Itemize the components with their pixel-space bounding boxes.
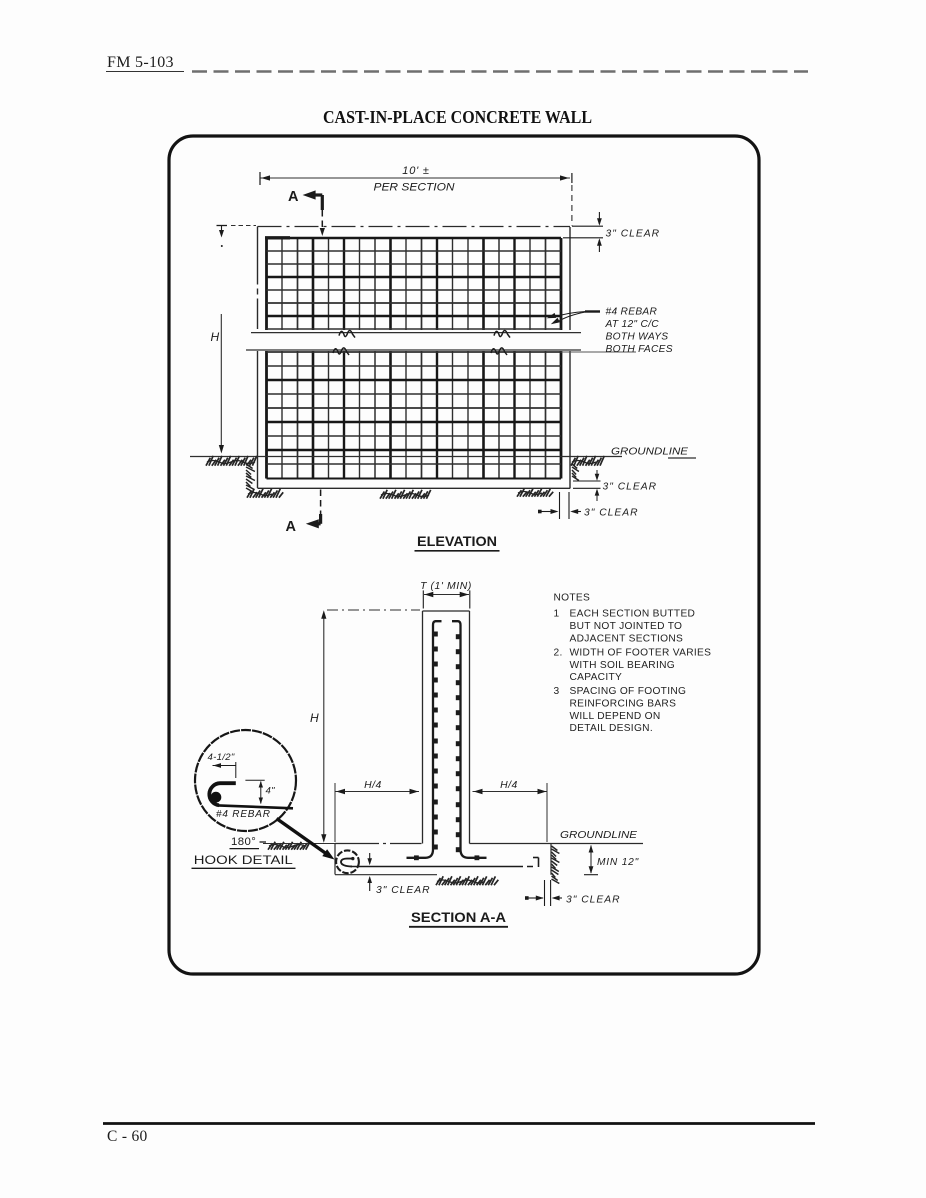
svg-text:3" CLEAR: 3" CLEAR — [603, 482, 658, 493]
svg-text:#4 REBAR: #4 REBAR — [216, 809, 271, 820]
svg-text:SECTION A-A: SECTION A-A — [411, 910, 506, 925]
svg-text:4-1/2": 4-1/2" — [208, 752, 235, 763]
svg-text:DETAIL DESIGN.: DETAIL DESIGN. — [570, 723, 653, 734]
svg-text:H/4: H/4 — [500, 780, 518, 791]
svg-text:3: 3 — [554, 686, 560, 697]
svg-text:3" CLEAR: 3" CLEAR — [606, 229, 661, 240]
svg-text:CAST-IN-PLACE CONCRETE WALL: CAST-IN-PLACE CONCRETE WALL — [323, 107, 592, 127]
svg-text:MIN 12": MIN 12" — [597, 857, 639, 868]
svg-text:AT 12" C/C: AT 12" C/C — [605, 319, 660, 330]
svg-text:NOTES: NOTES — [554, 593, 591, 604]
svg-text:10' ±: 10' ± — [402, 165, 429, 177]
svg-text:HOOK DETAIL: HOOK DETAIL — [194, 854, 294, 867]
svg-text:ELEVATION: ELEVATION — [417, 534, 497, 549]
svg-text:WILL DEPEND ON: WILL DEPEND ON — [570, 711, 661, 722]
svg-text:SPACING OF FOOTING: SPACING OF FOOTING — [570, 686, 687, 697]
svg-text:WIDTH OF FOOTER VARIES: WIDTH OF FOOTER VARIES — [570, 648, 712, 659]
svg-text:GROUNDLINE: GROUNDLINE — [611, 447, 688, 458]
svg-text:2.: 2. — [554, 648, 563, 659]
svg-text:T (1' MIN): T (1' MIN) — [420, 581, 472, 592]
svg-text:3" CLEAR: 3" CLEAR — [566, 895, 621, 906]
svg-text:BOTH FACES: BOTH FACES — [606, 344, 673, 355]
svg-text:GROUNDLINE: GROUNDLINE — [560, 830, 637, 841]
svg-text:PER SECTION: PER SECTION — [374, 182, 455, 194]
svg-text:#4 REBAR: #4 REBAR — [606, 307, 658, 318]
svg-text:EACH SECTION BUTTED: EACH SECTION BUTTED — [570, 609, 696, 620]
svg-text:FM 5-103: FM 5-103 — [107, 54, 174, 71]
svg-text:A: A — [288, 189, 299, 205]
svg-text:BUT NOT JOINTED TO: BUT NOT JOINTED TO — [570, 621, 683, 632]
svg-text:4": 4" — [266, 786, 276, 797]
svg-text:BOTH WAYS: BOTH WAYS — [606, 332, 669, 343]
svg-text:3" CLEAR: 3" CLEAR — [376, 885, 431, 896]
svg-text:REINFORCING BARS: REINFORCING BARS — [570, 699, 677, 710]
svg-text:H: H — [310, 711, 319, 725]
svg-text:180°: 180° — [231, 836, 256, 848]
svg-text:A: A — [286, 519, 297, 535]
svg-text:C - 60: C - 60 — [107, 1128, 148, 1145]
svg-text:1: 1 — [554, 609, 560, 620]
svg-text:ADJACENT SECTIONS: ADJACENT SECTIONS — [570, 634, 684, 645]
svg-text:3" CLEAR: 3" CLEAR — [584, 508, 639, 519]
svg-text:H: H — [211, 330, 220, 344]
svg-text:WITH SOIL BEARING: WITH SOIL BEARING — [570, 660, 675, 671]
svg-text:CAPACITY: CAPACITY — [570, 672, 623, 683]
svg-text:H/4: H/4 — [364, 780, 382, 791]
